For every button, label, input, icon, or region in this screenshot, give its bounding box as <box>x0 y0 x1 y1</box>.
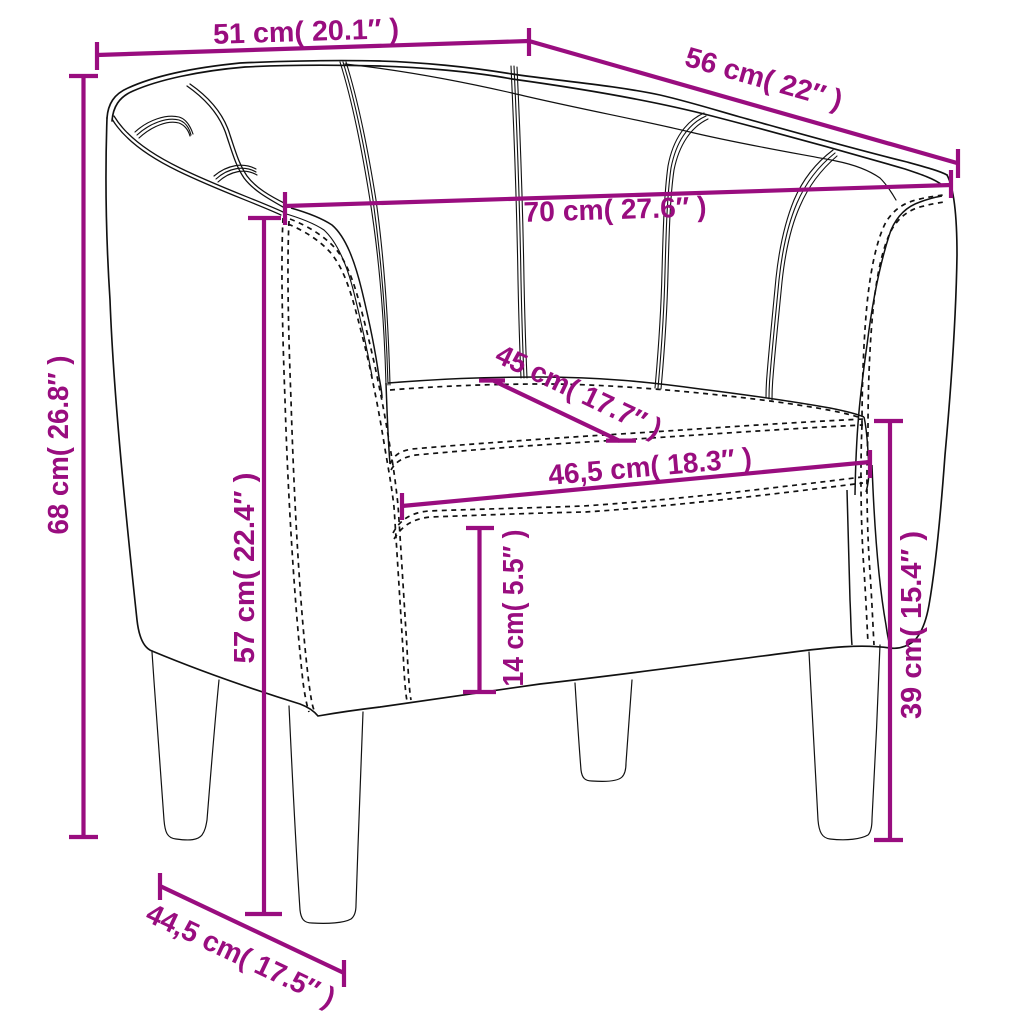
svg-text:39 cm( 15.4″ ): 39 cm( 15.4″ ) <box>896 531 928 719</box>
svg-text:51 cm( 20.1″ ): 51 cm( 20.1″ ) <box>213 13 400 51</box>
svg-text:68 cm( 26.8″ ): 68 cm( 26.8″ ) <box>43 356 75 535</box>
svg-text:70 cm( 27.6″ ): 70 cm( 27.6″ ) <box>523 191 707 229</box>
svg-text:14 cm( 5.5″ ): 14 cm( 5.5″ ) <box>498 530 530 687</box>
svg-text:56 cm( 22″ ): 56 cm( 22″ ) <box>681 41 846 116</box>
svg-text:57 cm( 22.4″ ): 57 cm( 22.4″ ) <box>229 473 261 664</box>
